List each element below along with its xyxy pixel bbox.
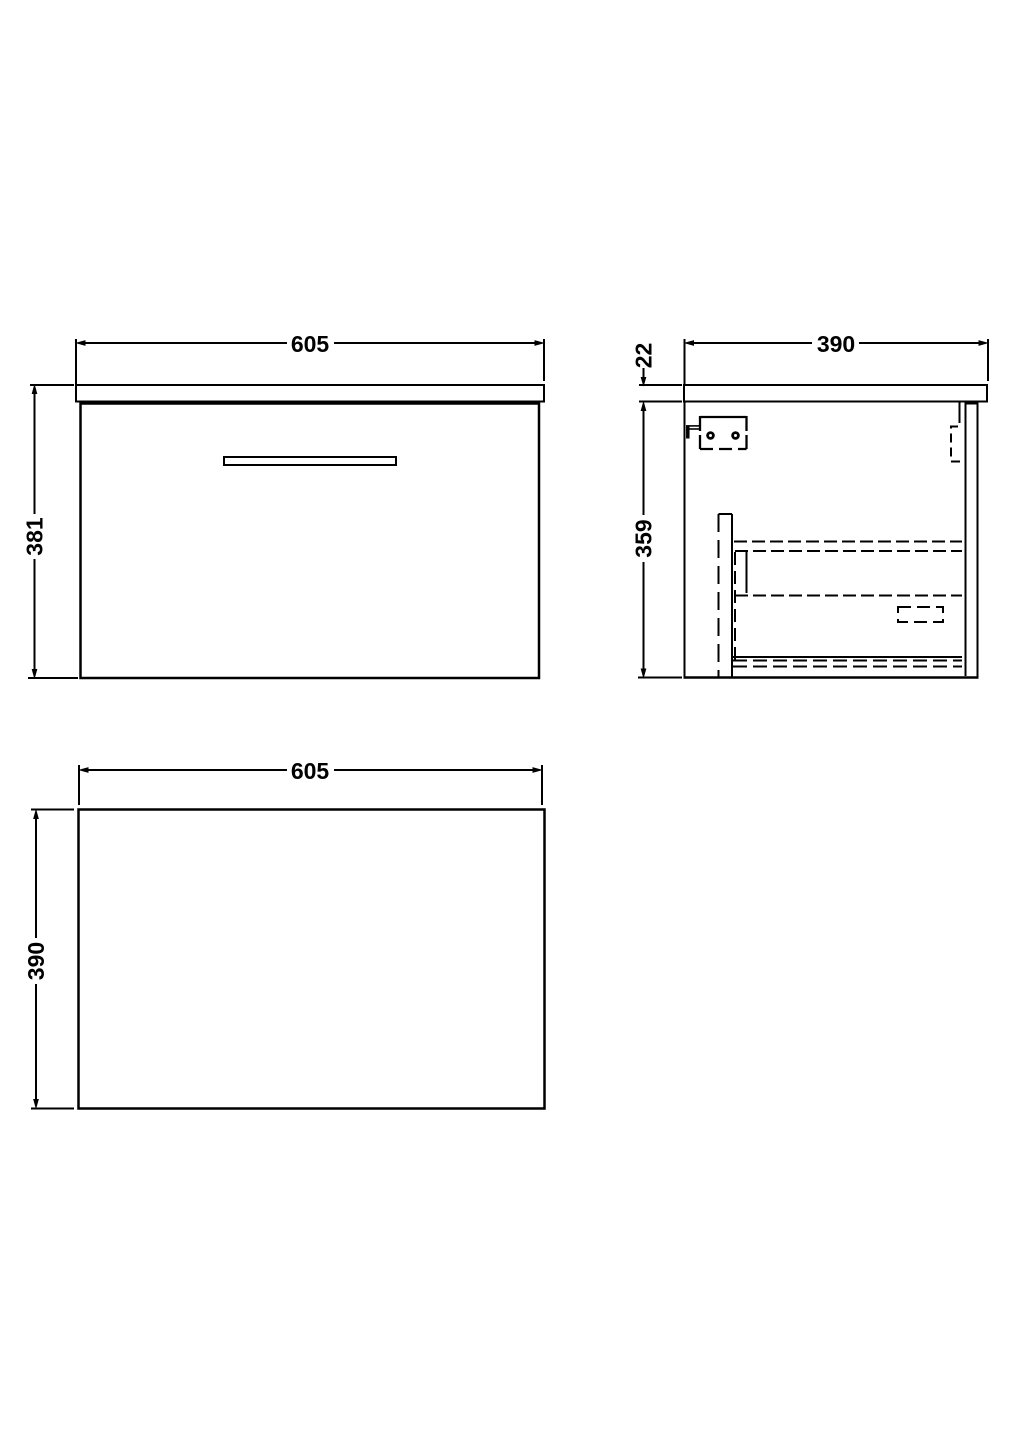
svg-text:381: 381 [22, 517, 48, 556]
svg-text:390: 390 [817, 331, 855, 357]
svg-text:390: 390 [23, 942, 49, 980]
svg-text:605: 605 [291, 758, 330, 784]
svg-text:605: 605 [291, 331, 330, 357]
svg-text:359: 359 [631, 519, 657, 557]
svg-text:22: 22 [631, 343, 657, 369]
